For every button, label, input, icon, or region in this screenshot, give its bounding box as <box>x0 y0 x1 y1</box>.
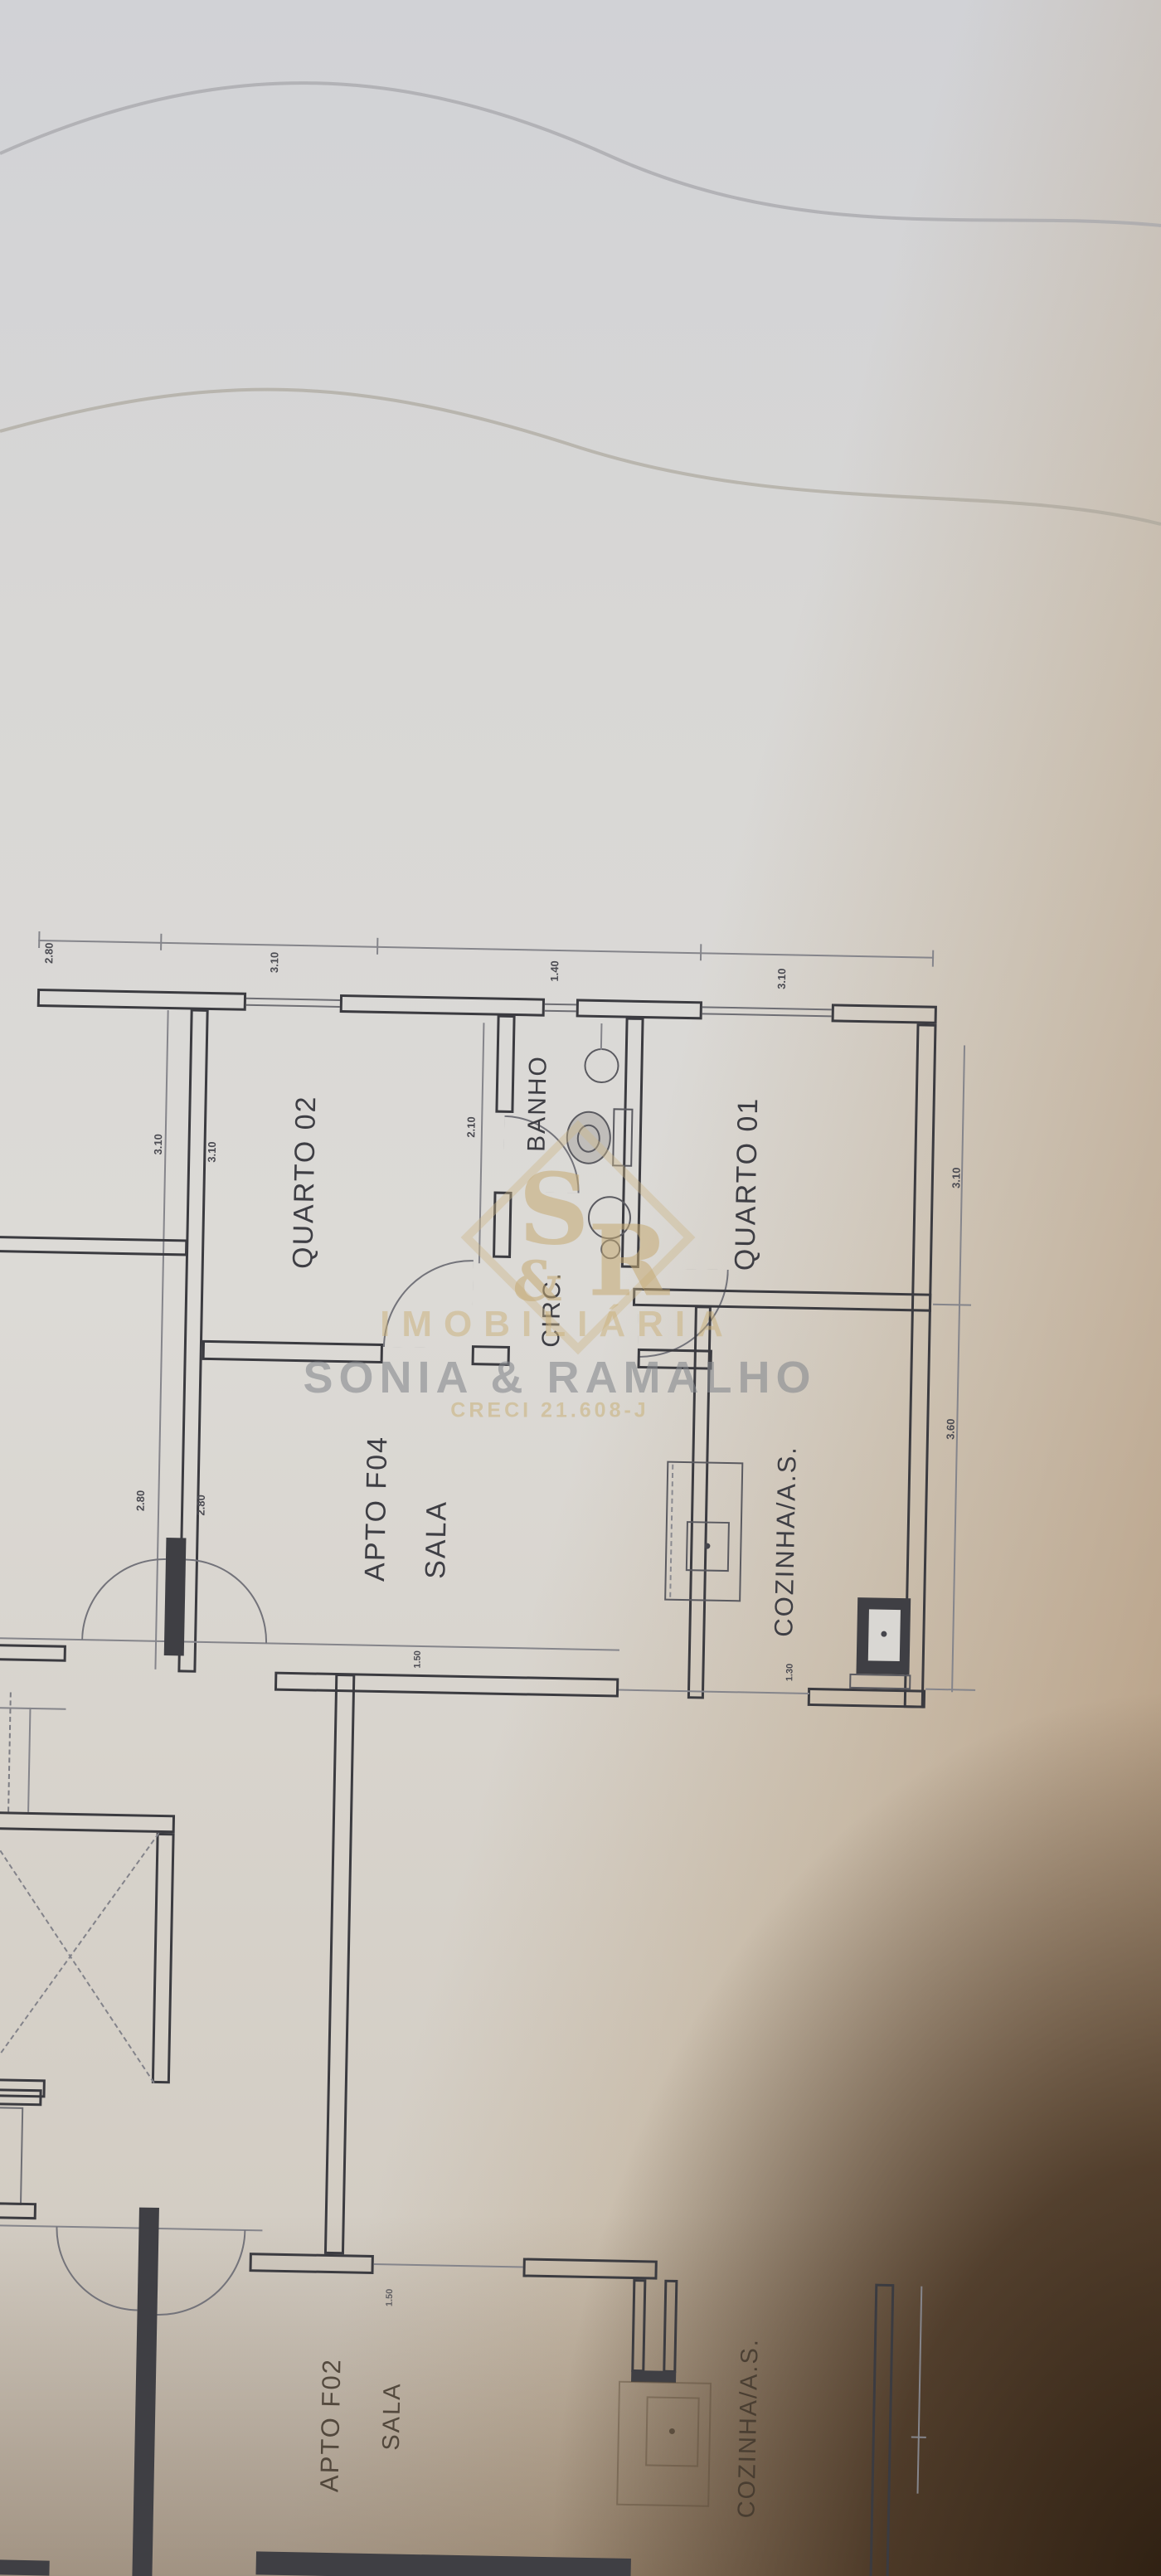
dimension-tick <box>933 1304 971 1306</box>
wall-segment <box>493 1192 512 1258</box>
room-label-apto-f02: APTO F02 <box>314 2358 347 2493</box>
wall-segment <box>631 2279 646 2372</box>
wall-segment <box>0 1236 187 1256</box>
dimension-label: 3.10 <box>950 1167 962 1188</box>
wall-segment <box>324 1674 355 2254</box>
door-arc-quarto01 <box>638 1268 729 1359</box>
sink-drain-dot <box>704 1543 710 1549</box>
room-label-quarto02: QUARTO 02 <box>287 1095 323 1269</box>
wall-segment <box>274 1672 619 1698</box>
bathroom-sink <box>584 1048 619 1084</box>
dimension-label: 3.10 <box>268 952 280 974</box>
dimension-tick <box>38 931 40 948</box>
dimension-label: 1.30 <box>785 1664 794 1682</box>
wall-segment <box>472 1345 510 1366</box>
wall-segment <box>0 2559 50 2576</box>
room-label-cozinha-f02: COZINHA/A.S. <box>733 2338 764 2519</box>
dimension-line <box>38 940 934 959</box>
dimension-label: 3.60 <box>944 1418 956 1440</box>
tank-drain-dot <box>881 1631 887 1637</box>
dimension-label: 1.50 <box>385 2289 395 2307</box>
dimension-tick <box>376 938 378 955</box>
wall-thin-line <box>374 2263 523 2267</box>
wall-segment <box>869 2284 894 2576</box>
dimension-label: 2.80 <box>134 1490 147 1512</box>
room-label-cozinha-f04: COZINHA/A.S. <box>769 1446 802 1637</box>
wall-segment <box>249 2253 373 2274</box>
shaft-x-diagonal <box>0 1833 159 2080</box>
dimension-label: 3.10 <box>206 1141 218 1163</box>
dimension-label: 2.80 <box>42 942 55 964</box>
wall-thin-line <box>619 1689 809 1694</box>
dimension-label: 1.40 <box>548 960 561 982</box>
wall-segment <box>808 1688 925 1708</box>
entry-door-arc-f04 <box>184 1559 269 1644</box>
wall-segment <box>37 989 246 1011</box>
shaft-x-diagonal <box>0 1830 155 2083</box>
wall-stub <box>164 1538 187 1655</box>
dimension-tick <box>160 934 162 950</box>
dimension-label: 2.10 <box>464 1116 477 1138</box>
wall-segment <box>152 1833 175 2083</box>
entry-door-arc-left <box>81 1557 166 1641</box>
dimension-tick <box>911 2436 926 2437</box>
door-arc-quarto02 <box>383 1258 474 1349</box>
entry-door-arc-f02 <box>157 2228 245 2317</box>
wall-segment <box>663 2280 678 2373</box>
wall-segment <box>0 1811 175 1833</box>
floor-drain <box>600 1239 620 1259</box>
wall-segment <box>576 999 702 1019</box>
wall-segment <box>202 1340 383 1363</box>
window <box>246 998 340 1008</box>
sink-faucet-line <box>600 1023 603 1050</box>
room-label-circ: CIRC. <box>537 1271 567 1348</box>
wall-segment <box>495 1015 515 1113</box>
wall-segment <box>0 1644 66 1662</box>
dimension-line <box>478 1023 485 1263</box>
floorplan-photo: QUARTO 02 BANHO QUARTO 01 CIRC. APTO F04… <box>0 0 1161 2576</box>
dimension-label: 1.50 <box>412 1650 422 1669</box>
dimension-line <box>951 1045 965 1692</box>
tank-pedestal <box>849 1674 911 1689</box>
window <box>702 1006 832 1017</box>
dimension-line <box>917 2287 923 2494</box>
stair-line <box>27 1708 31 1812</box>
entry-door-arc-lower-left <box>55 2227 139 2311</box>
door-frame <box>0 2107 23 2205</box>
wall-segment <box>522 2258 657 2279</box>
wall-segment <box>340 994 545 1017</box>
dimension-label: 3.10 <box>152 1134 164 1155</box>
floorplan-drawing: QUARTO 02 BANHO QUARTO 01 CIRC. APTO F04… <box>0 0 1161 2576</box>
room-label-f02-sala: SALA <box>378 2382 407 2451</box>
toilet-tank <box>612 1108 633 1166</box>
room-label-apto-f04: APTO F04 <box>359 1436 394 1582</box>
room-label-banho: BANHO <box>522 1055 552 1152</box>
room-label-quarto01: QUARTO 01 <box>729 1096 765 1271</box>
sink-drain-dot <box>669 2428 675 2434</box>
wall-segment <box>255 2551 630 2576</box>
room-label-f04-sala: SALA <box>420 1499 454 1579</box>
dimension-label: 2.80 <box>194 1495 206 1516</box>
stair-dashed-line <box>7 1692 12 1811</box>
wall-segment <box>0 2202 36 2219</box>
window <box>545 1004 576 1013</box>
dimension-label: 3.10 <box>775 968 788 989</box>
dimension-tick <box>700 944 702 960</box>
wall-segment <box>832 1004 937 1023</box>
wall-segment <box>0 2088 42 2106</box>
dimension-tick <box>932 950 934 967</box>
